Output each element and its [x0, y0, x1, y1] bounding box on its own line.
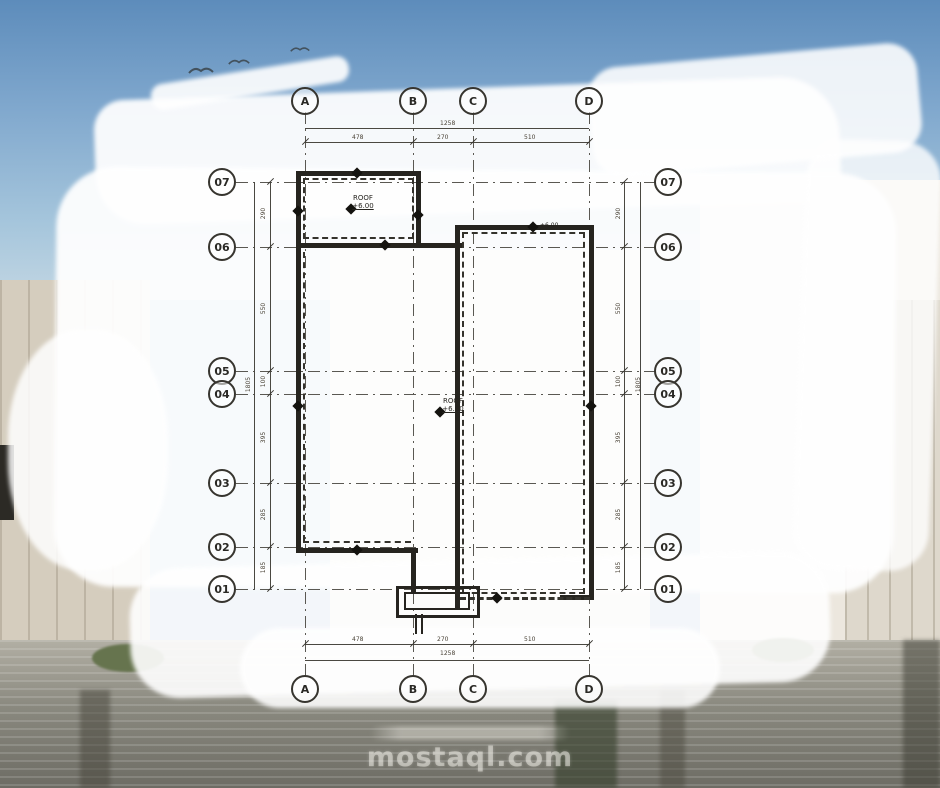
dim-text: 185 [615, 562, 622, 573]
grid-bubble-top-B: B [399, 87, 427, 115]
grid-bubble-left-02: 02 [208, 533, 236, 561]
dim-text: 395 [260, 432, 267, 443]
dim-text: 270 [437, 636, 448, 643]
dim-text: 478 [352, 636, 363, 643]
parapet-dashed [303, 252, 305, 541]
dim-text: 270 [437, 134, 448, 141]
bubble-label: 05 [660, 365, 675, 378]
dim-text: 510 [524, 636, 535, 643]
watermark-site-text: mostaql.com [300, 742, 640, 773]
dim-text-overall-bottom: 1258 [440, 650, 455, 657]
bubble-label: 06 [214, 241, 229, 254]
dim-line [305, 660, 589, 661]
level-marker-icon [491, 592, 502, 603]
bubble-label: 06 [660, 241, 675, 254]
level-marker-icon [292, 400, 303, 411]
bubble-label: 04 [660, 388, 675, 401]
bubble-label: 01 [660, 583, 675, 596]
grid-bubble-right-07: 07 [654, 168, 682, 196]
roof-label-upper: ROOF +6.00 [346, 194, 380, 210]
dim-line [270, 182, 271, 589]
dim-text-overall-left: 1805 [245, 377, 252, 392]
dim-text: 285 [615, 509, 622, 520]
bubble-label: B [409, 95, 417, 108]
bubble-label: 07 [660, 176, 675, 189]
dim-text: 100 [615, 376, 622, 387]
dim-text: 395 [615, 432, 622, 443]
bubble-label: A [301, 95, 310, 108]
grid-bubble-top-A: A [291, 87, 319, 115]
grid-bubble-bottom-A: A [291, 675, 319, 703]
dim-text: 185 [260, 562, 267, 573]
bubble-label: 02 [660, 541, 675, 554]
dim-text-overall-right: 1805 [635, 377, 642, 392]
wall-segment [455, 225, 594, 230]
bubble-label: 05 [214, 365, 229, 378]
bubble-label: 01 [214, 583, 229, 596]
grid-bubble-bottom-B: B [399, 675, 427, 703]
grid-bubble-left-03: 03 [208, 469, 236, 497]
dim-line [305, 142, 589, 143]
dim-text-overall-top: 1258 [440, 120, 455, 127]
dim-text: 510 [524, 134, 535, 141]
roof-level-text: +6.00 [436, 405, 470, 413]
grid-bubble-right-06: 06 [654, 233, 682, 261]
wall-segment [589, 225, 594, 600]
dim-text: 550 [260, 303, 267, 314]
dim-text: 285 [260, 509, 267, 520]
roof-label-text: ROOF [346, 194, 380, 202]
dim-line [305, 644, 589, 645]
grid-bubble-bottom-D: D [575, 675, 603, 703]
grid-bubble-right-04: 04 [654, 380, 682, 408]
level-text: +6.00 [540, 222, 558, 229]
roof-level-text: +6.00 [346, 202, 380, 210]
dim-text: 290 [260, 208, 267, 219]
roof-label-main: ROOF +6.00 [436, 397, 470, 413]
level-marker-icon [585, 400, 596, 411]
bubble-label: D [584, 95, 593, 108]
watermark: mostaql.com [300, 726, 640, 773]
dim-text: 100 [260, 376, 267, 387]
dim-line [305, 128, 589, 129]
dim-text: 550 [615, 303, 622, 314]
bubble-label: C [469, 683, 477, 696]
bubble-label: 04 [214, 388, 229, 401]
watermark-arabic-blur [370, 726, 570, 740]
grid-bubble-right-01: 01 [654, 575, 682, 603]
grid-bubble-top-C: C [459, 87, 487, 115]
roof-label-text: ROOF [436, 397, 470, 405]
grid-bubble-left-06: 06 [208, 233, 236, 261]
bubble-label: B [409, 683, 417, 696]
bubble-label: 02 [214, 541, 229, 554]
bubble-label: 03 [660, 477, 675, 490]
wall-segment [296, 171, 301, 553]
grid-bubble-left-01: 01 [208, 575, 236, 603]
dim-text: 290 [615, 208, 622, 219]
grid-bubble-right-02: 02 [654, 533, 682, 561]
dim-line [624, 182, 625, 589]
grid-bubble-left-04: 04 [208, 380, 236, 408]
grid-bubble-left-07: 07 [208, 168, 236, 196]
bubble-label: C [469, 95, 477, 108]
bubble-label: D [584, 683, 593, 696]
wall-segment [455, 225, 460, 610]
roof-plan-drawing: A B C D A B C D 07 06 05 04 03 02 01 07 … [0, 0, 940, 788]
bubble-label: A [301, 683, 310, 696]
grid-bubble-bottom-C: C [459, 675, 487, 703]
parapet-dashed [303, 541, 411, 543]
level-marker-icon [292, 205, 303, 216]
level-marker-icon [379, 239, 390, 250]
grid-bubble-right-03: 03 [654, 469, 682, 497]
grid-bubble-top-D: D [575, 87, 603, 115]
dim-line [254, 182, 255, 589]
bubble-label: 03 [214, 477, 229, 490]
level-marker-icon [527, 221, 538, 232]
dim-text: 478 [352, 134, 363, 141]
bubble-label: 07 [214, 176, 229, 189]
stair-canopy-inner [404, 592, 470, 610]
level-marker-icon [351, 167, 362, 178]
level-marker-icon [412, 209, 423, 220]
parapet-dashed [462, 232, 585, 594]
